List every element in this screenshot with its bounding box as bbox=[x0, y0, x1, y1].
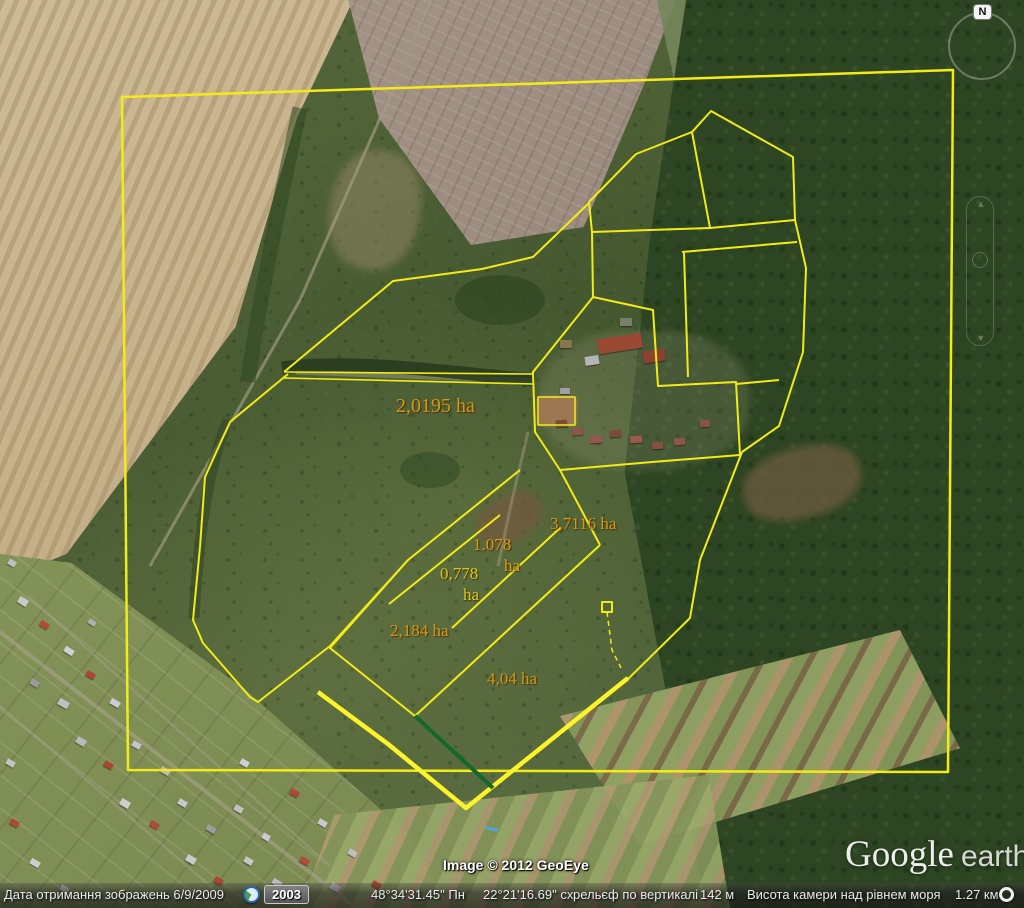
parcel-label-2-0195: 2,0195 ha bbox=[396, 395, 475, 418]
terrain-elevation-label: рельєф по вертикалі bbox=[573, 887, 698, 902]
camera-altitude-label: Висота камери над рівнем моря bbox=[747, 887, 941, 902]
camera-altitude-value: 1.27 км bbox=[955, 887, 999, 902]
zoom-in-icon[interactable]: ▲ bbox=[967, 199, 995, 209]
streaming-progress-icon bbox=[999, 887, 1014, 902]
status-bar: Дата отримання зображень 6/9/2009 2003 4… bbox=[0, 883, 1024, 908]
longitude-readout: 22°21'16.69" сх. bbox=[483, 887, 577, 902]
parcel-label-0-778: 0,778 bbox=[440, 564, 478, 584]
google-earth-viewport[interactable]: 2,0195 ha3,7116 ha1.078ha0,778ha2,184 ha… bbox=[0, 0, 1024, 908]
zoom-slider-handle[interactable] bbox=[972, 252, 988, 268]
parcel-label-0-778: ha bbox=[463, 585, 479, 605]
parcel-label-3-7116: 3,7116 ha bbox=[550, 514, 616, 534]
parcel-labels-layer: 2,0195 ha3,7116 ha1.078ha0,778ha2,184 ha… bbox=[0, 0, 1024, 908]
parcel-label-1-078: ha bbox=[504, 556, 520, 576]
parcel-label-2-184: 2,184 ha bbox=[390, 621, 449, 641]
parcel-label-1-078: 1.078 bbox=[473, 535, 511, 555]
zoom-slider[interactable]: ▲ ▼ bbox=[966, 196, 994, 346]
imagery-attribution: Image © 2012 GeoEye bbox=[443, 857, 589, 873]
imagery-date-label: Дата отримання зображень 6/9/2009 bbox=[4, 887, 224, 902]
compass-ring[interactable] bbox=[948, 12, 1016, 80]
zoom-out-icon[interactable]: ▼ bbox=[967, 333, 995, 343]
compass-north-button[interactable]: N bbox=[973, 4, 992, 20]
parcel-label-4-04: 4,04 ha bbox=[487, 669, 537, 689]
terrain-elevation-value: 142 м bbox=[700, 887, 734, 902]
google-logo: Google bbox=[845, 834, 954, 875]
historical-imagery-clock-icon[interactable] bbox=[243, 886, 260, 903]
timeline-year-button[interactable]: 2003 bbox=[264, 885, 309, 904]
latitude-readout: 48°34'31.45" Пн bbox=[371, 887, 465, 902]
google-earth-watermark: Googleearth bbox=[845, 833, 1024, 876]
earth-logo: earth bbox=[961, 840, 1024, 873]
